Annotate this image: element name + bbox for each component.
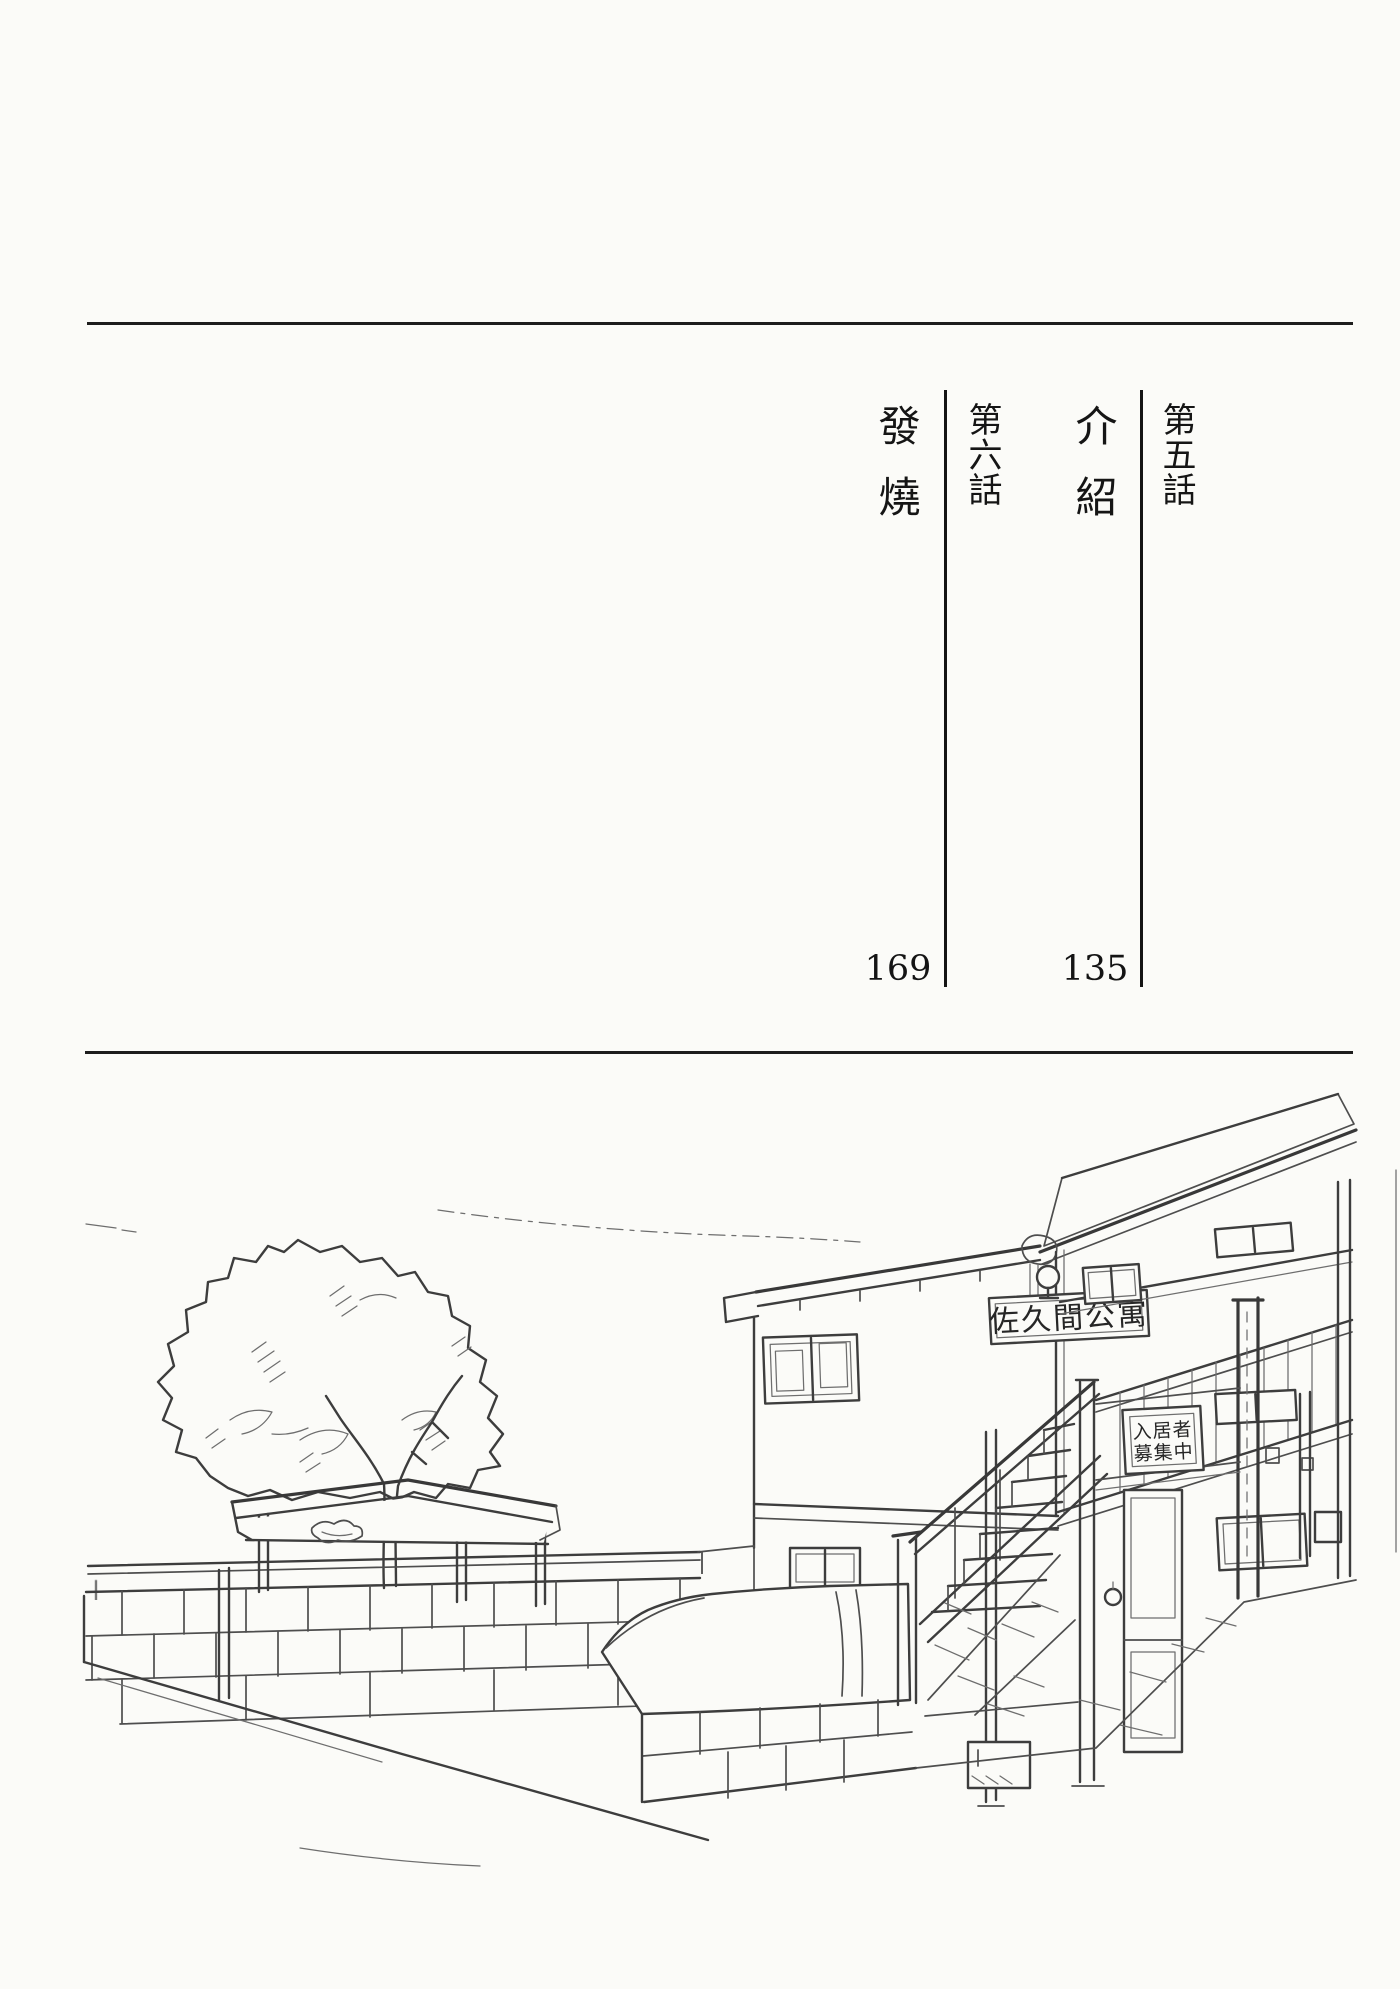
apartment-sketch-illustration: 佐久間公寓 (0, 0, 1400, 1989)
tarp-fence (602, 1532, 921, 1802)
walkway-back-window (1215, 1390, 1296, 1424)
understairs-box (968, 1742, 1030, 1788)
front-ground-window (790, 1548, 860, 1588)
second-floor-window (763, 1334, 859, 1403)
lower-block-wall (642, 1700, 916, 1802)
side-window-2 (1215, 1223, 1293, 1258)
book-contents-page: 第五話 介紹 135 第六話 發燒 169 (0, 0, 1400, 1989)
side-window-1 (1083, 1264, 1141, 1304)
vacancy-sign-line2: 募集中 (1133, 1440, 1194, 1465)
ground-window-1 (1217, 1514, 1308, 1571)
horizon-wire (86, 1210, 860, 1242)
vacancy-sign-line1: 入居者 (1132, 1418, 1193, 1443)
